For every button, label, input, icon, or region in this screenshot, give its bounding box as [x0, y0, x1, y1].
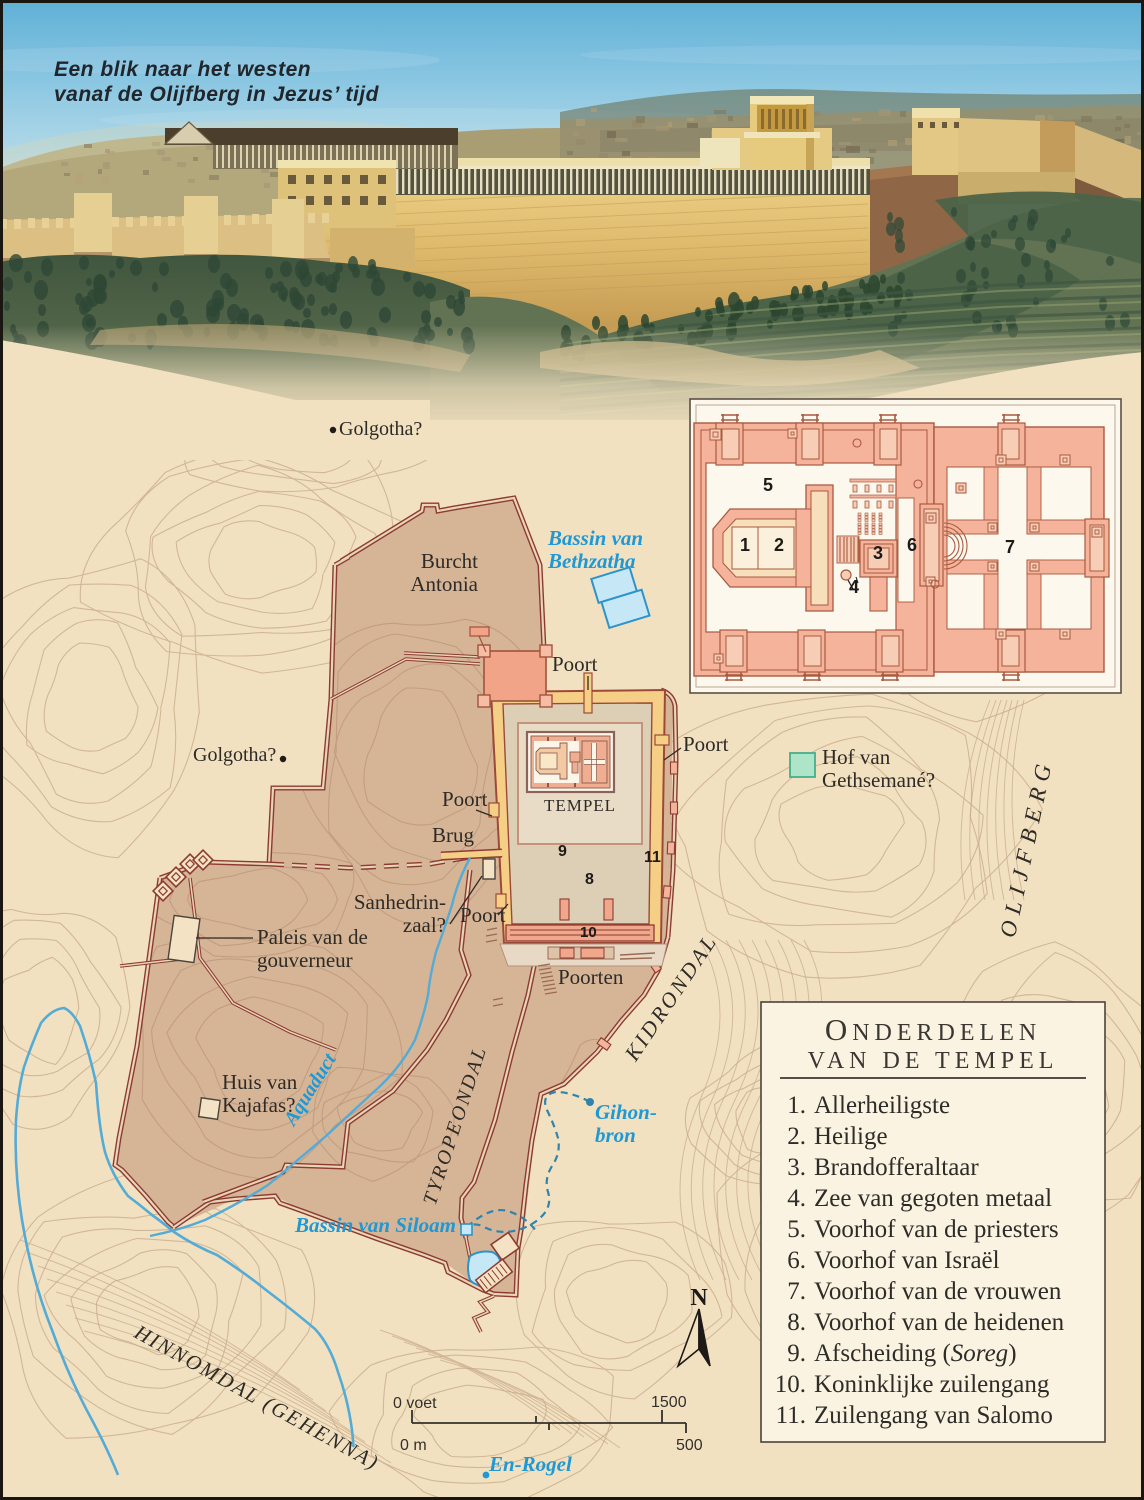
svg-text:3: 3	[873, 543, 883, 563]
svg-text:11.: 11.	[776, 1402, 806, 1429]
svg-text:Antonia: Antonia	[410, 572, 478, 596]
svg-text:Voorhof van de vrouwen: Voorhof van de vrouwen	[814, 1278, 1062, 1305]
svg-text:6: 6	[907, 535, 917, 555]
svg-text:6.: 6.	[787, 1247, 806, 1274]
svg-text:Bethzatha: Bethzatha	[547, 549, 636, 573]
svg-text:Poort: Poort	[442, 787, 488, 811]
svg-text:Zee van gegoten metaal: Zee van gegoten metaal	[814, 1185, 1052, 1212]
svg-text:TEMPEL: TEMPEL	[544, 796, 616, 815]
svg-text:Poort: Poort	[552, 652, 598, 676]
svg-text:2.: 2.	[787, 1123, 806, 1150]
svg-text:Bassin van: Bassin van	[547, 526, 643, 550]
svg-text:zaal?: zaal?	[403, 913, 446, 937]
svg-text:Gihon-: Gihon-	[595, 1100, 657, 1124]
svg-text:Voorhof van Israël: Voorhof van Israël	[814, 1247, 1000, 1274]
svg-text:Een blik naar het westen: Een blik naar het westen	[54, 58, 311, 81]
svg-text:11: 11	[644, 849, 661, 866]
svg-text:Burcht: Burcht	[421, 549, 478, 573]
svg-text:gouverneur: gouverneur	[257, 948, 353, 972]
svg-text:En-Rogel: En-Rogel	[488, 1452, 572, 1476]
svg-text:10.: 10.	[775, 1371, 806, 1398]
svg-text:0 m: 0 m	[400, 1437, 427, 1454]
svg-text:500: 500	[676, 1437, 703, 1454]
svg-text:5.: 5.	[787, 1216, 806, 1243]
svg-text:Koninklijke zuilengang: Koninklijke zuilengang	[814, 1371, 1050, 1398]
svg-text:Voorhof van de heidenen: Voorhof van de heidenen	[814, 1309, 1065, 1336]
svg-text:N: N	[690, 1285, 708, 1311]
svg-text:Gethsemané?: Gethsemané?	[822, 768, 935, 792]
svg-text:10: 10	[580, 924, 597, 941]
svg-text:2: 2	[774, 535, 784, 555]
svg-text:VAN DE TEMPEL: VAN DE TEMPEL	[808, 1048, 1059, 1074]
svg-text:Afscheiding (Soreg): Afscheiding (Soreg)	[814, 1340, 1017, 1367]
svg-text:1.: 1.	[787, 1092, 806, 1119]
svg-text:Bassin van Siloam: Bassin van Siloam	[294, 1213, 456, 1237]
svg-text:Brandofferaltaar: Brandofferaltaar	[814, 1154, 979, 1181]
svg-text:7.: 7.	[787, 1278, 806, 1305]
svg-text:7: 7	[1005, 537, 1015, 557]
svg-text:Golgotha?: Golgotha?	[193, 744, 276, 766]
svg-text:Poort: Poort	[683, 732, 729, 756]
svg-text:Heilige: Heilige	[814, 1123, 888, 1150]
svg-text:Huis van: Huis van	[222, 1070, 298, 1094]
svg-text:1: 1	[740, 535, 750, 555]
svg-text:4.: 4.	[787, 1185, 806, 1212]
svg-text:8: 8	[585, 871, 594, 888]
svg-text:9: 9	[558, 843, 567, 860]
svg-text:5: 5	[763, 475, 773, 495]
svg-text:Voorhof van de priesters: Voorhof van de priesters	[814, 1216, 1059, 1243]
svg-text:3.: 3.	[787, 1154, 806, 1181]
svg-text:8.: 8.	[787, 1309, 806, 1336]
svg-text:Sanhedrin-: Sanhedrin-	[354, 890, 446, 914]
svg-text:Hof van: Hof van	[822, 745, 891, 769]
svg-text:9.: 9.	[787, 1340, 806, 1367]
svg-text:vanaf de Olijfberg in Jezus’ t: vanaf de Olijfberg in Jezus’ tijd	[54, 83, 380, 106]
svg-text:Zuilengang van Salomo: Zuilengang van Salomo	[814, 1402, 1053, 1429]
svg-text:Golgotha?: Golgotha?	[339, 418, 422, 440]
svg-text:1500: 1500	[651, 1394, 687, 1411]
svg-text:bron: bron	[595, 1123, 636, 1147]
svg-text:Paleis van de: Paleis van de	[257, 925, 368, 949]
svg-text:0 voet: 0 voet	[393, 1395, 437, 1412]
svg-text:Brug: Brug	[432, 823, 475, 847]
svg-text:Allerheiligste: Allerheiligste	[814, 1092, 950, 1119]
svg-text:Poorten: Poorten	[558, 965, 624, 989]
